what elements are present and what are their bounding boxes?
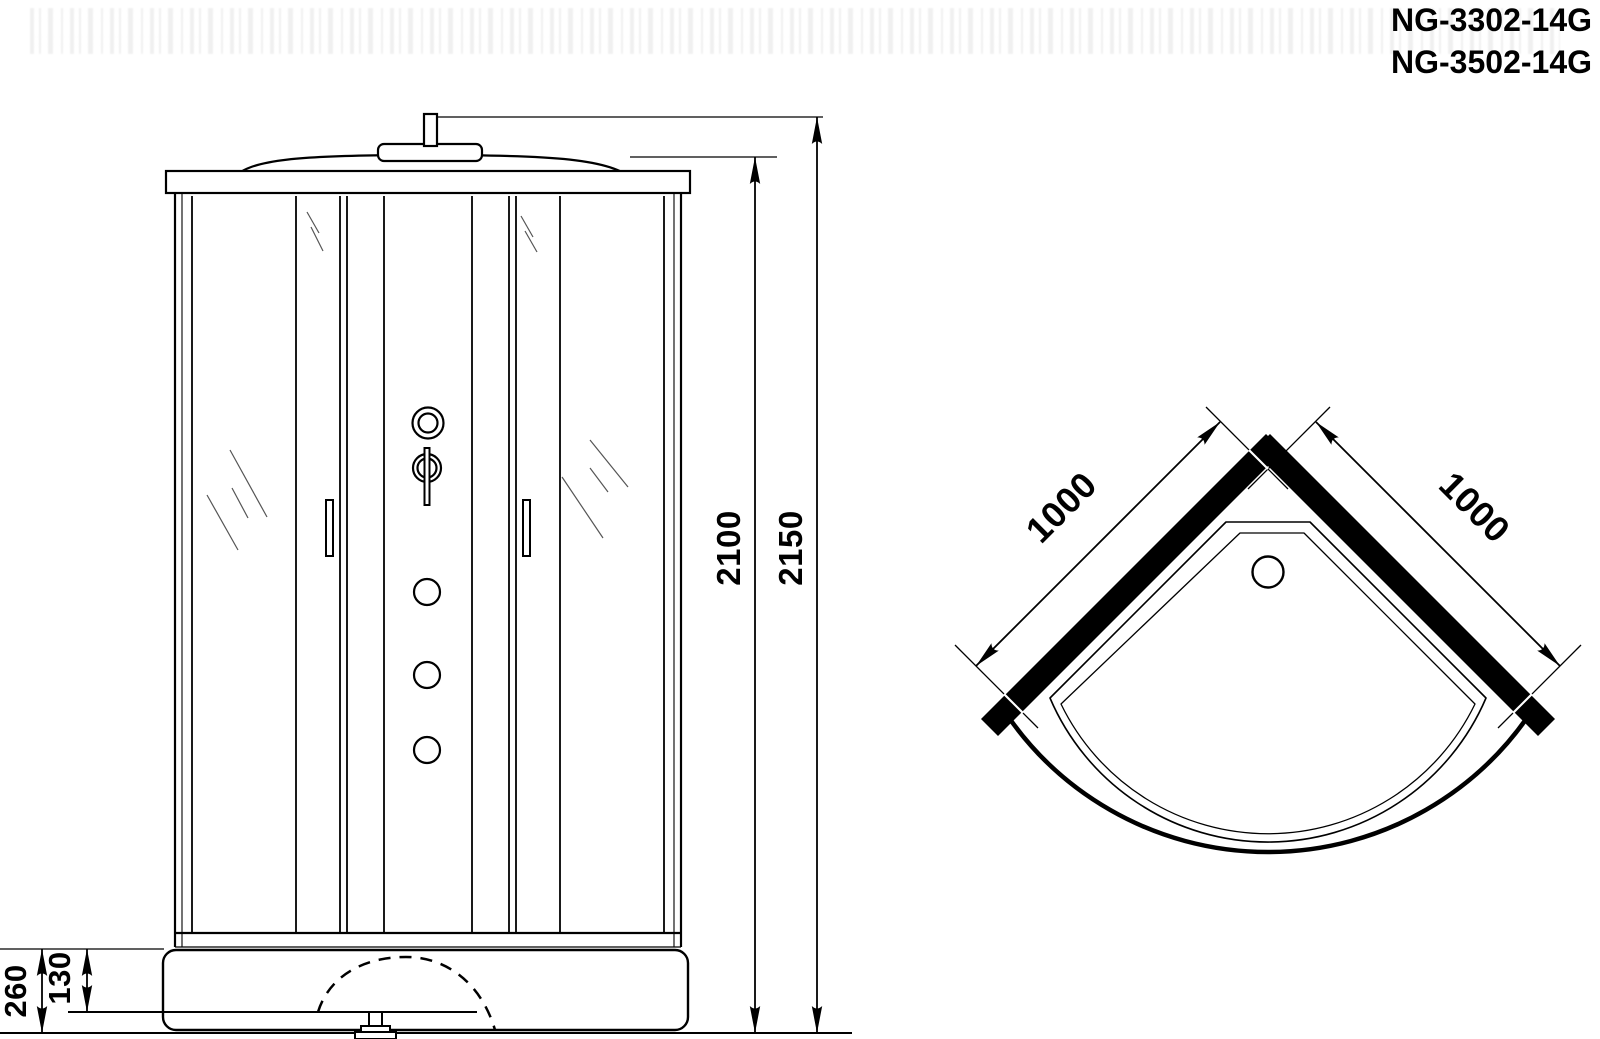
panel-frame-lines <box>175 193 681 947</box>
dim-label-1000-left: 1000 <box>1018 464 1105 551</box>
glass-reflection-hatches <box>207 212 628 550</box>
plan-view: 1000 1000 <box>955 407 1581 852</box>
technical-drawing-page: { "models": ["NG-3302-14G", "NG-3502-14G… <box>0 0 1600 1039</box>
top-shower-ring-inner <box>419 414 438 433</box>
shower-tray-front <box>163 950 688 1030</box>
dim-label-260: 260 <box>0 964 33 1017</box>
top-cornice <box>166 171 690 193</box>
model-code-2: NG-3502-14G <box>1391 44 1592 80</box>
front-glass-arc <box>1005 712 1531 852</box>
shower-head-pipe <box>424 114 437 146</box>
control-column <box>413 408 444 764</box>
mixer-lever <box>425 448 430 505</box>
wall-left <box>981 434 1283 736</box>
massage-jet-3 <box>414 737 440 763</box>
shower-cabin-technical-drawing: 2100 2150 260 130 1000 <box>0 0 1600 1039</box>
dim-label-130: 130 <box>42 951 77 1004</box>
massage-jet-1 <box>414 579 440 605</box>
right-door-handle <box>523 500 530 556</box>
drain-hole <box>1253 557 1284 588</box>
drawing-stage: 2100 2150 260 130 1000 <box>0 0 1600 1039</box>
front-view-dimensions: 2100 2150 260 130 <box>0 117 817 1033</box>
model-code-1: NG-3302-14G <box>1391 2 1592 38</box>
tray-outline-outer <box>1050 522 1486 842</box>
dim-label-1000-right: 1000 <box>1431 464 1518 551</box>
top-shower-ring-outer <box>413 408 444 439</box>
model-codes: NG-3302-14G NG-3502-14G <box>1391 2 1592 80</box>
dim-label-2100: 2100 <box>710 510 747 585</box>
massage-jet-2 <box>414 662 440 688</box>
front-view: 2100 2150 260 130 <box>0 114 852 1039</box>
wall-right <box>1253 434 1555 736</box>
left-door-handle <box>326 500 333 556</box>
dim-label-2150: 2150 <box>772 510 809 585</box>
